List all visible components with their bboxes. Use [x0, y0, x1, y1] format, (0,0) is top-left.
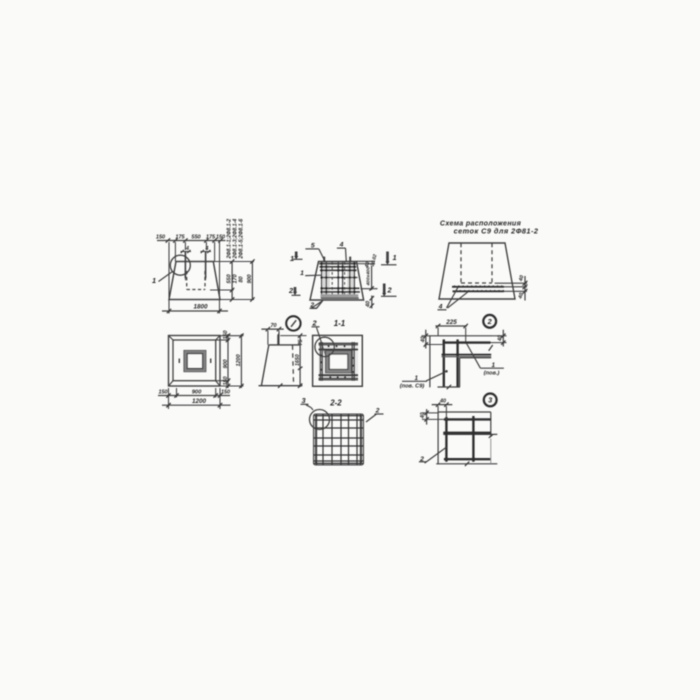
svg-text:5: 5 — [311, 242, 315, 249]
svg-text:175: 175 — [175, 234, 185, 240]
svg-text:1800: 1800 — [193, 304, 208, 311]
svg-text:3: 3 — [301, 396, 305, 405]
svg-text:150: 150 — [221, 389, 230, 395]
svg-text:сеток С9 для 2Ф81-2: сеток С9 для 2Ф81-2 — [454, 226, 539, 235]
svg-text:40: 40 — [498, 335, 504, 342]
svg-text:(пов. С9): (пов. С9) — [400, 383, 425, 389]
svg-text:70: 70 — [270, 323, 276, 329]
svg-text:900: 900 — [223, 359, 229, 368]
svg-text:1: 1 — [392, 253, 396, 262]
svg-text:150: 150 — [158, 389, 167, 395]
svg-text:550: 550 — [191, 234, 201, 240]
svg-text:150: 150 — [156, 234, 166, 240]
svg-text:1650: 1650 — [295, 354, 301, 366]
svg-text:1: 1 — [491, 362, 495, 369]
svg-text:2-2: 2-2 — [329, 399, 342, 408]
svg-text:75: 75 — [298, 338, 304, 345]
svg-text:40: 40 — [420, 336, 426, 343]
svg-text:40: 40 — [365, 301, 371, 308]
svg-text:400х400: 400х400 — [365, 266, 371, 286]
svg-text:900: 900 — [192, 389, 202, 395]
svg-text:4: 4 — [438, 304, 443, 311]
svg-text:150: 150 — [223, 330, 229, 339]
svg-text:1-1: 1-1 — [334, 319, 345, 328]
svg-text:900: 900 — [247, 274, 253, 283]
svg-text:40: 40 — [439, 398, 446, 404]
svg-text:150: 150 — [216, 234, 226, 240]
svg-text:225: 225 — [445, 319, 457, 326]
svg-text:1200: 1200 — [236, 354, 242, 366]
svg-text:1: 1 — [414, 375, 418, 382]
svg-text:3: 3 — [488, 396, 492, 405]
svg-text:1200: 1200 — [192, 398, 207, 405]
svg-text:(пов.): (пов.) — [484, 371, 500, 377]
svg-text:175: 175 — [206, 234, 216, 240]
svg-text:1: 1 — [152, 276, 156, 285]
svg-text:1: 1 — [300, 270, 304, 277]
svg-text:80: 80 — [239, 276, 245, 282]
svg-text:2Ф8.1-5;2Ф8.1-6: 2Ф8.1-5;2Ф8.1-6 — [239, 219, 245, 260]
svg-text:150: 150 — [223, 376, 229, 385]
svg-text:1: 1 — [290, 254, 294, 263]
